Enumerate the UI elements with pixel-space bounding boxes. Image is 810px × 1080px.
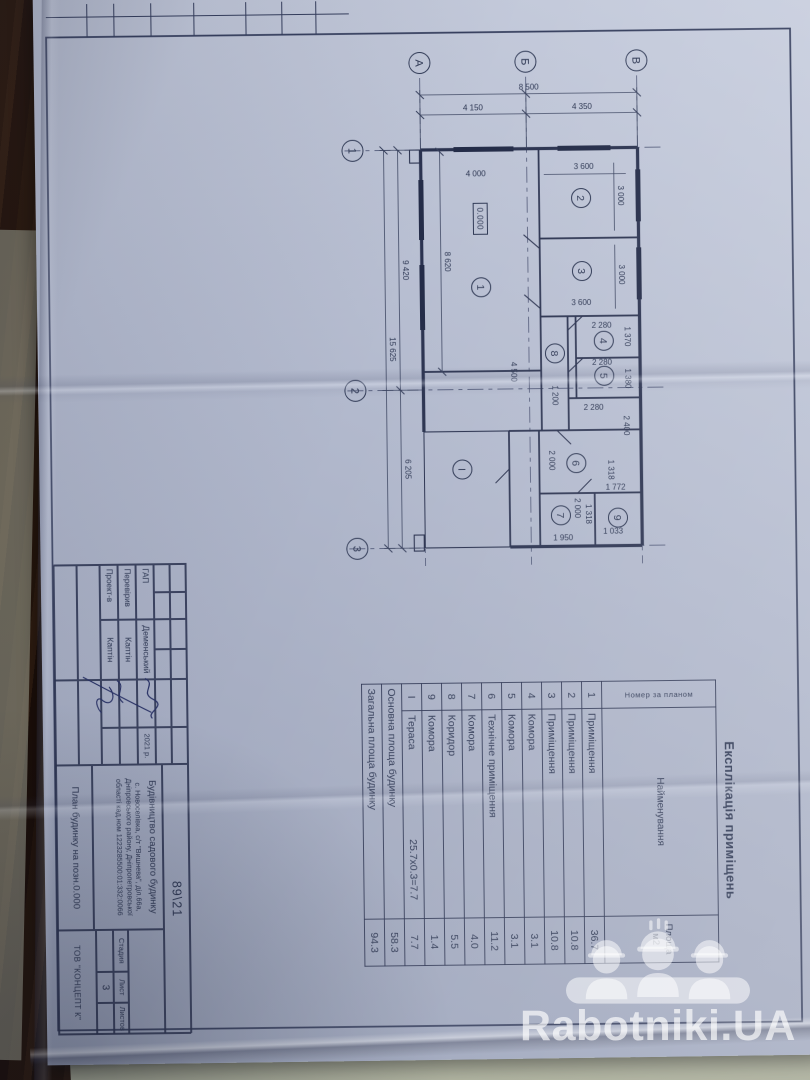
axis-number: 2 bbox=[348, 388, 360, 394]
dim-label: 15 625 bbox=[388, 337, 397, 362]
dim-label: 1 370 bbox=[623, 326, 632, 347]
room-number: 6 bbox=[569, 460, 581, 466]
dim-label: 3 600 bbox=[571, 298, 592, 307]
dim-label: 1 950 bbox=[553, 533, 574, 542]
row-area: 11.2 bbox=[484, 918, 505, 965]
signature bbox=[76, 672, 162, 768]
row-name: Комора bbox=[502, 709, 525, 917]
sheet-title: План будинку на позн.0.000 bbox=[55, 765, 94, 930]
dimension-lines bbox=[379, 87, 643, 548]
stamp-cell bbox=[154, 619, 170, 649]
row-num: 3 bbox=[541, 682, 561, 709]
stamp-cell bbox=[170, 564, 186, 592]
dim-label: 3 000 bbox=[617, 264, 626, 285]
dim-label: 8 620 bbox=[443, 252, 452, 273]
col-name-header: Найменування bbox=[602, 707, 719, 916]
sheets-label: Листов bbox=[114, 1003, 129, 1035]
stamp-cell bbox=[171, 649, 187, 679]
row-note: 25.7х0.3=7.7 bbox=[407, 839, 420, 900]
signer-role: ГАП bbox=[136, 564, 155, 619]
stamp-cell bbox=[77, 565, 101, 680]
photo-of-drawing: В Б А 1 2 3 bbox=[0, 0, 810, 1080]
row-num: 2 bbox=[561, 682, 581, 709]
window-marks bbox=[420, 147, 639, 330]
dim-label: 1 033 bbox=[603, 527, 624, 536]
stamp-cell bbox=[170, 592, 186, 619]
under-sheet-edge bbox=[0, 230, 39, 1061]
dim-label: 2 000 bbox=[547, 450, 556, 471]
brand-text: Rabotniki.UA bbox=[508, 1002, 808, 1051]
dim-label: 2 400 bbox=[622, 415, 631, 436]
row-num: 6 bbox=[481, 683, 501, 710]
room-number: 3 bbox=[575, 268, 587, 274]
dim-label: 1 772 bbox=[606, 483, 627, 492]
axis-letter: Б bbox=[518, 58, 530, 65]
row-area: 1.4 bbox=[424, 918, 445, 965]
dim-label: 4 350 bbox=[572, 102, 593, 111]
stamp-cell bbox=[128, 929, 165, 1034]
room-number: 2 bbox=[574, 195, 586, 201]
company-name: ТОВ "КОНЦЕПТ К" bbox=[57, 930, 97, 1035]
room-number: 7 bbox=[554, 512, 566, 518]
dim-label: 3 600 bbox=[574, 162, 595, 171]
sheet-label: Лист bbox=[113, 972, 128, 1003]
stamp-cell bbox=[53, 565, 78, 680]
row-name: Загальна площа будинку bbox=[362, 684, 385, 919]
row-name: Технічне приміщення bbox=[482, 710, 505, 918]
dim-label: 8 500 bbox=[519, 83, 540, 92]
dim-label: 3 000 bbox=[616, 186, 625, 207]
row-num: 8 bbox=[441, 683, 461, 710]
table-row: І Тераса25.7х0.3=7.7 7.7 bbox=[401, 684, 424, 966]
row-area: 4.0 bbox=[464, 918, 485, 965]
dim-label: 2 280 bbox=[592, 358, 613, 367]
row-name: Тераса bbox=[406, 715, 418, 750]
row-name: Приміщення bbox=[562, 709, 585, 917]
row-area: 7.7 bbox=[404, 919, 425, 966]
row-name: Приміщення bbox=[582, 708, 605, 916]
dim-label: 4 000 bbox=[466, 169, 487, 178]
axis-number: 1 bbox=[345, 148, 357, 154]
dim-label: 1 318 bbox=[606, 460, 615, 481]
table-row: 6Технічне приміщення11.2 bbox=[481, 683, 504, 965]
stage-value bbox=[96, 930, 114, 972]
stamp-cell bbox=[172, 727, 188, 764]
col-num-header: Номер за планом bbox=[624, 689, 693, 699]
table-row: Основна площа будинку58.3 bbox=[382, 684, 405, 966]
stamp-cell bbox=[170, 619, 186, 649]
doc-number: 89\21 bbox=[162, 764, 191, 1034]
axis-number: 3 bbox=[350, 546, 362, 552]
axis-letter: А bbox=[412, 59, 424, 67]
dim-label: 4 500 bbox=[509, 362, 518, 383]
watermark: Rabotniki.UA bbox=[508, 916, 808, 1051]
terrace-edge bbox=[409, 149, 510, 551]
stage-label: Стадия bbox=[113, 930, 129, 972]
signer-role: Перевірив bbox=[118, 565, 137, 620]
construction-workers-icon bbox=[558, 916, 758, 1008]
row-num: 4 bbox=[521, 682, 541, 709]
row-num: І bbox=[401, 684, 421, 711]
signer-name: Каптін bbox=[118, 620, 137, 680]
table-row: 9Комора1.4 bbox=[421, 683, 444, 965]
dim-label: 1 380 bbox=[623, 368, 632, 389]
signer-name: Деменський bbox=[136, 619, 155, 679]
row-name: Коридор bbox=[442, 710, 465, 918]
row-name: Комора bbox=[522, 709, 545, 917]
row-name: Основна площа будинку bbox=[382, 684, 405, 919]
table-row: Загальна площа будинку94.3 bbox=[362, 684, 385, 966]
row-name: Комора bbox=[462, 710, 485, 918]
room-number: 9 bbox=[611, 515, 623, 521]
dim-label: 1 318 bbox=[584, 504, 593, 525]
row-name: Комора bbox=[422, 710, 445, 918]
dim-label: 1 200 bbox=[550, 385, 559, 406]
signer-name: Каптін bbox=[100, 620, 119, 680]
row-num: 1 bbox=[581, 681, 601, 708]
room-number: 4 bbox=[597, 338, 609, 344]
dim-label: 2 280 bbox=[584, 403, 605, 412]
elevation-value: 0.000 bbox=[475, 207, 484, 230]
row-name: Приміщення bbox=[542, 709, 565, 917]
table-row: 7Комора4.0 bbox=[461, 683, 484, 965]
room-number: 1 bbox=[474, 284, 486, 290]
axis-letter: В bbox=[629, 57, 641, 64]
stamp-cell bbox=[154, 564, 170, 592]
dim-label: 2 000 bbox=[573, 498, 582, 519]
sheets-value bbox=[97, 1003, 114, 1035]
row-num: 9 bbox=[421, 683, 441, 710]
stamp-cell bbox=[154, 592, 170, 619]
room-number: І bbox=[455, 468, 467, 471]
title-block: ГАП Деменський 2021 р. Перевірив Каптін … bbox=[54, 563, 193, 1035]
drawing-document: В Б А 1 2 3 bbox=[32, 0, 810, 1045]
elevation-mark: 0.000 bbox=[473, 203, 487, 234]
signer-role: Проект-в bbox=[100, 565, 119, 620]
object-name: Будівництво садового будинку bbox=[145, 780, 158, 914]
table-row: 8Коридор5.5 bbox=[441, 683, 464, 965]
row-area: 5.5 bbox=[444, 918, 465, 965]
room-number: 8 bbox=[548, 350, 560, 356]
row-num: 5 bbox=[501, 682, 521, 709]
stamp-cell bbox=[171, 679, 188, 727]
dim-label: 9 420 bbox=[401, 260, 410, 281]
dim-label: 4 150 bbox=[463, 103, 484, 112]
sheet-number: 3 bbox=[96, 972, 113, 1003]
dim-label: 6 205 bbox=[403, 459, 412, 480]
room-number: 5 bbox=[597, 373, 609, 379]
row-area: 58.3 bbox=[384, 919, 405, 966]
object-cell: Будівництво садового будинку с. Новоселі… bbox=[92, 764, 164, 930]
row-num: 7 bbox=[461, 683, 481, 710]
dim-label: 2 280 bbox=[592, 321, 613, 330]
row-area: 94.3 bbox=[364, 919, 385, 966]
object-address: с. Новоселівка, с/т "Вишнева", діл.66а, … bbox=[114, 765, 144, 928]
